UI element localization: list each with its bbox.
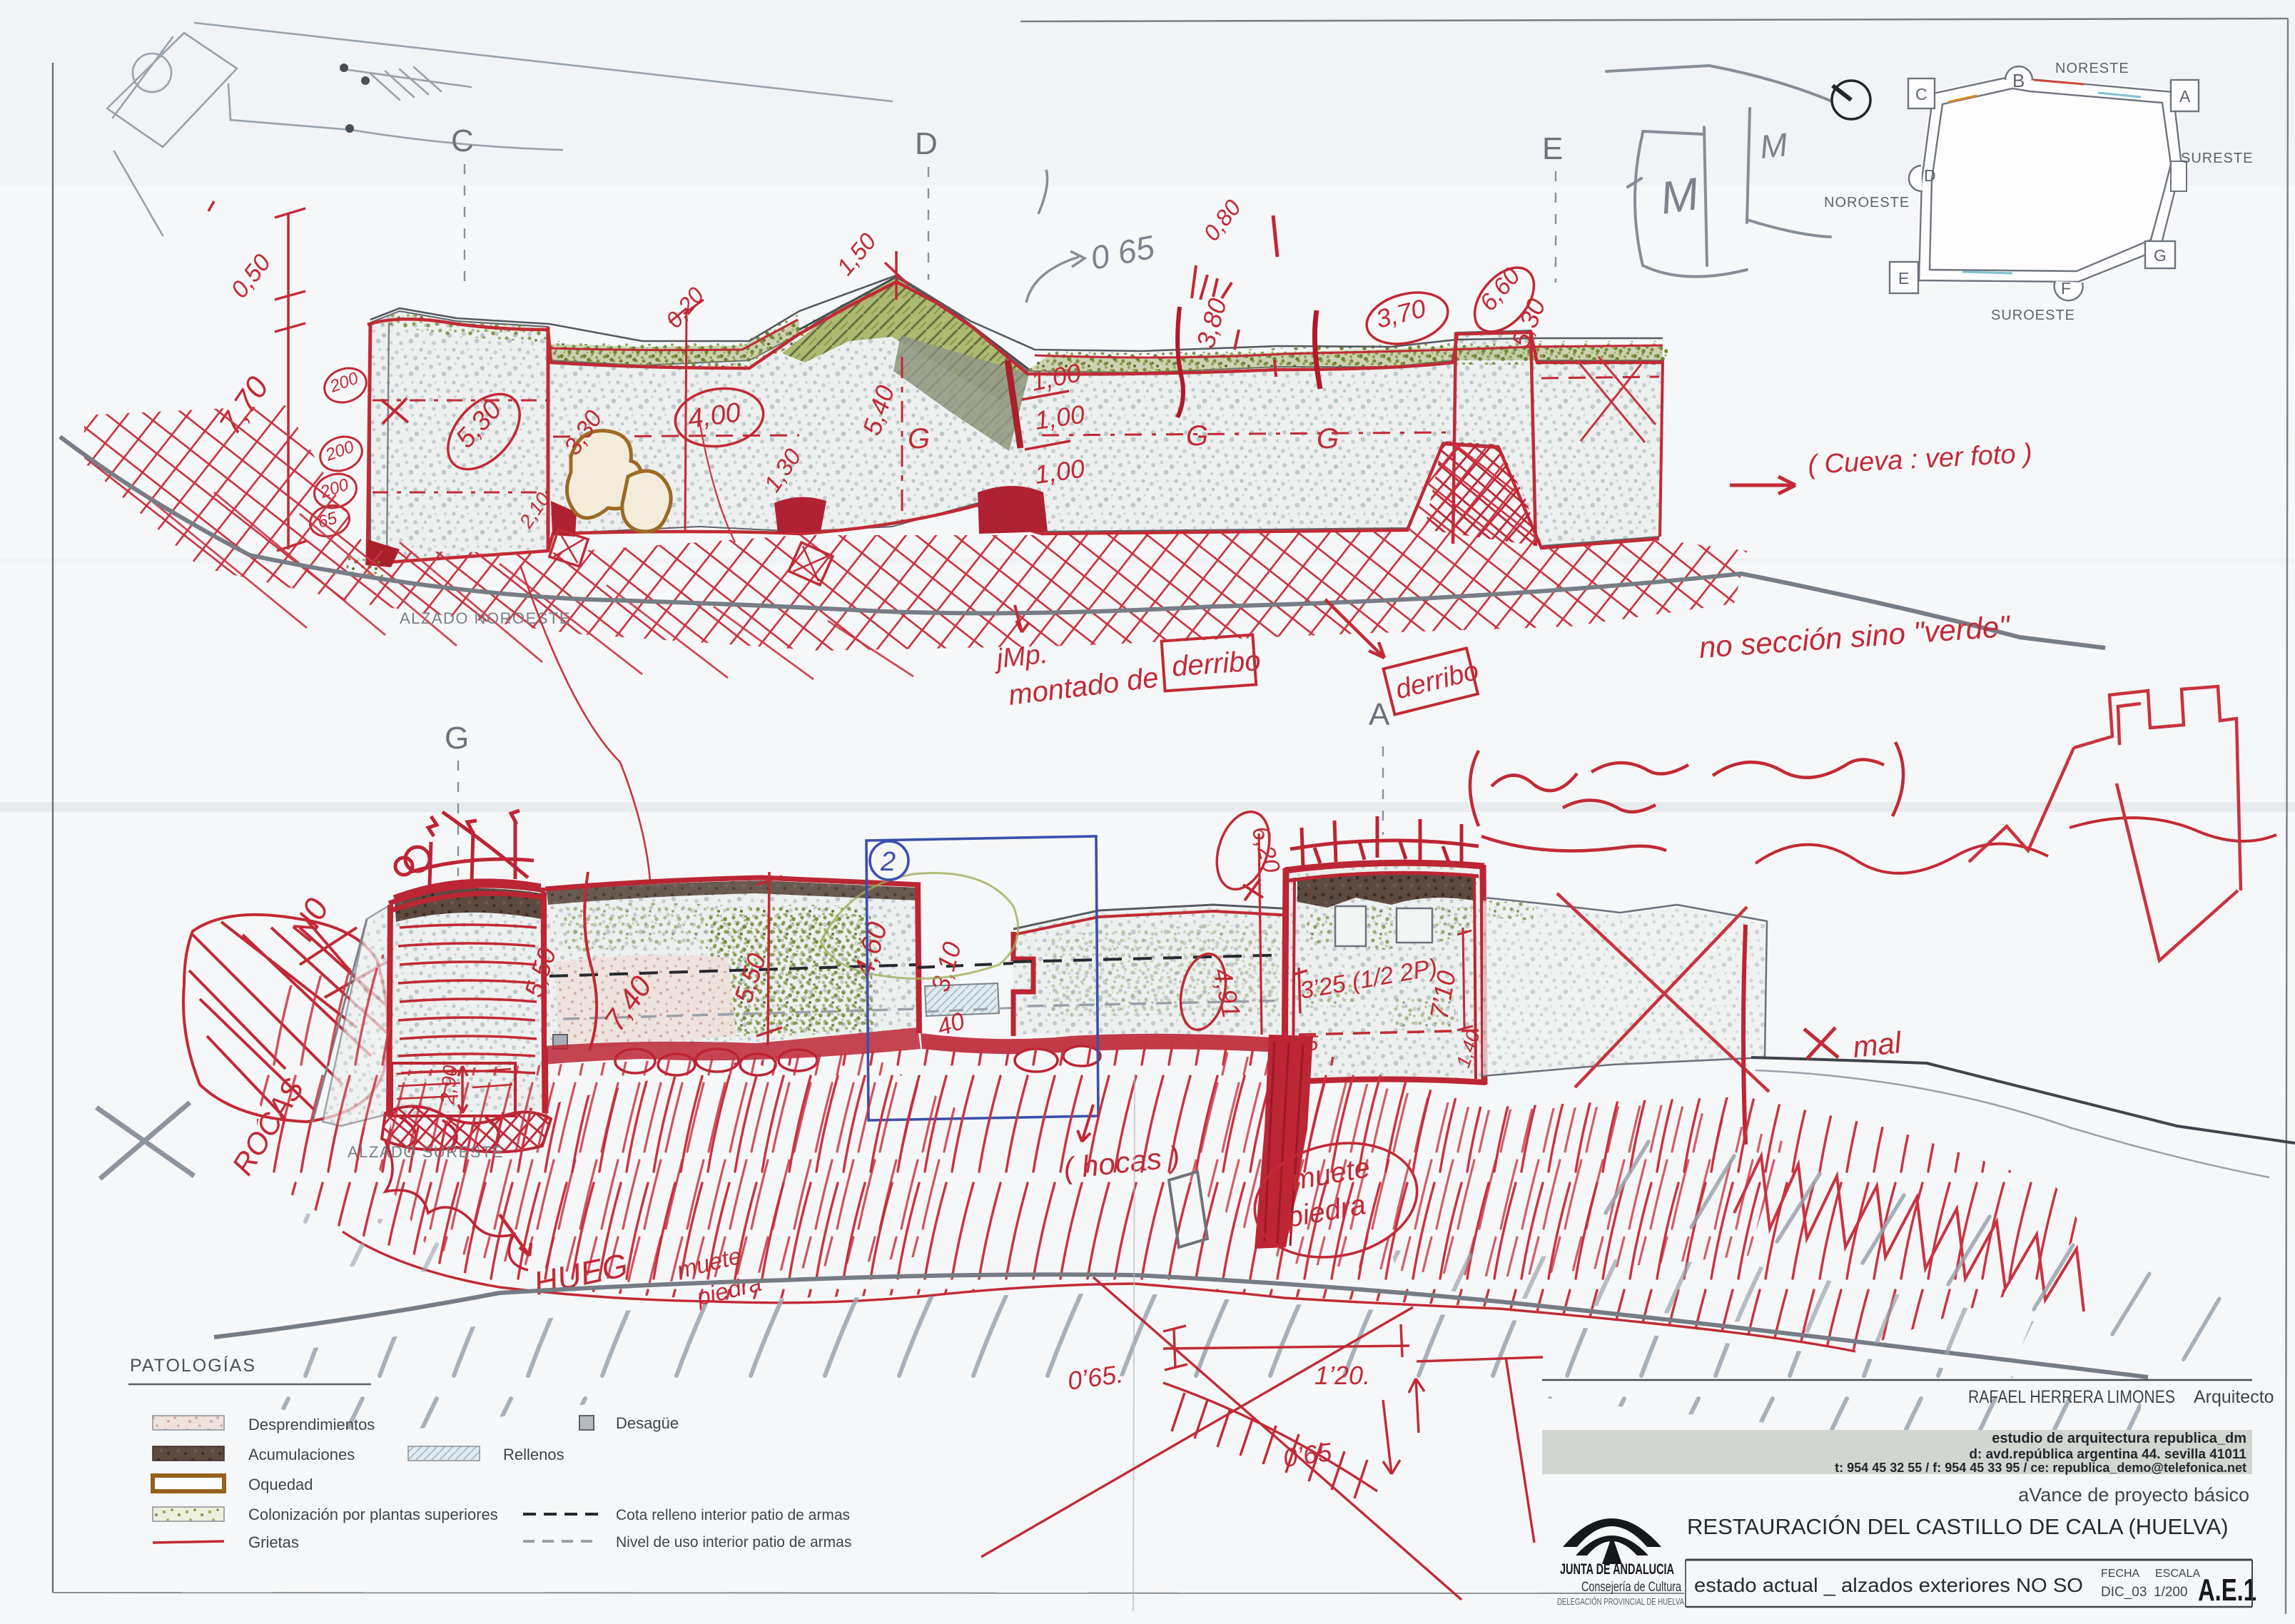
svg-text:B: B: [2012, 70, 2025, 91]
svg-text:G: G: [445, 721, 469, 756]
svg-text:Arquitecto: Arquitecto: [2194, 1387, 2274, 1407]
svg-text:D: D: [915, 126, 938, 161]
svg-text:G: G: [1317, 423, 1339, 455]
svg-text:ESCALA: ESCALA: [2155, 1568, 2200, 1580]
svg-text:Desprendimientos: Desprendimientos: [248, 1416, 375, 1433]
svg-text:estado actual _ alzados exteri: estado actual _ alzados exteriores NO SO: [1694, 1574, 2083, 1596]
svg-text:C: C: [1915, 85, 1927, 103]
svg-text:NOROESTE: NOROESTE: [1824, 195, 1910, 210]
svg-text:G: G: [908, 423, 930, 455]
svg-text:aVance de proyecto básico: aVance de proyecto básico: [2018, 1484, 2249, 1506]
svg-text:Oquedad: Oquedad: [248, 1476, 313, 1493]
svg-text:Desagüe: Desagüe: [616, 1414, 679, 1432]
svg-text:Rellenos: Rellenos: [503, 1446, 564, 1463]
svg-text:G: G: [2154, 246, 2167, 265]
svg-text:E: E: [1898, 269, 1909, 288]
svg-text:A: A: [1369, 697, 1390, 732]
svg-text:ALZADO SURESTE: ALZADO SURESTE: [348, 1143, 504, 1161]
svg-text:Nivel de uso interior patio de: Nivel de uso interior patio de armas: [616, 1534, 851, 1551]
svg-text:C: C: [451, 123, 474, 158]
svg-text:A: A: [2179, 87, 2191, 106]
svg-text:Acumulaciones: Acumulaciones: [248, 1446, 355, 1463]
svg-text:F: F: [2061, 279, 2071, 298]
svg-text:RAFAEL HERRERA LIMONES: RAFAEL HERRERA LIMONES: [1968, 1387, 2175, 1407]
svg-text:DIC_03: DIC_03: [2101, 1585, 2147, 1600]
svg-text:d: avd.república argentina 44: d: avd.república argentina 44. sevilla 4…: [1969, 1447, 2246, 1462]
svg-text:1’20.: 1’20.: [1314, 1361, 1370, 1390]
svg-text:RESTAURACIÓN DEL CASTILLO DE C: RESTAURACIÓN DEL CASTILLO DE CALA (HUELV…: [1687, 1514, 2229, 1539]
svg-text:JUNTA DE ANDALUCIA: JUNTA DE ANDALUCIA: [1560, 1561, 1674, 1578]
svg-text:2: 2: [880, 847, 896, 877]
svg-text:derribo: derribo: [1171, 645, 1262, 683]
svg-text:FECHA: FECHA: [2101, 1568, 2140, 1580]
svg-text:SURESTE: SURESTE: [2181, 151, 2253, 166]
svg-text:Colonización por plantas super: Colonización por plantas superiores: [248, 1506, 498, 1523]
svg-text:A.E.1: A.E.1: [2198, 1573, 2256, 1608]
svg-text:PATOLOGÍAS: PATOLOGÍAS: [130, 1355, 256, 1376]
svg-text:estudio de arquitectura republ: estudio de arquitectura republica_dm: [1992, 1431, 2246, 1446]
svg-text:t: 954 45 32 55 / f: 954 45 33: t: 954 45 32 55 / f: 954 45 33 95 / ce: …: [1835, 1461, 2246, 1475]
svg-text:mal: mal: [1851, 1025, 1904, 1064]
svg-text:G: G: [1186, 420, 1208, 452]
svg-text:E: E: [1542, 131, 1563, 166]
svg-text:Consejería de Cultura: Consejería de Cultura: [1581, 1580, 1681, 1595]
svg-text:1/200: 1/200: [2154, 1585, 2188, 1600]
svg-text:jMp.: jMp.: [992, 639, 1050, 675]
svg-text:ALZADO NOROESTE: ALZADO NOROESTE: [400, 609, 571, 627]
svg-text:D: D: [1924, 166, 1936, 185]
svg-text:M: M: [1758, 126, 1790, 166]
svg-text:M: M: [1657, 168, 1702, 224]
svg-text:Cota relleno interior patio de: Cota relleno interior patio de armas: [616, 1507, 850, 1523]
svg-text:Grietas: Grietas: [248, 1533, 299, 1551]
svg-text:DELEGACIÓN PROVINCIAL DE HUELV: DELEGACIÓN PROVINCIAL DE HUELVA: [1557, 1596, 1684, 1607]
svg-text:SUROESTE: SUROESTE: [1991, 308, 2075, 323]
svg-text:NORESTE: NORESTE: [2055, 61, 2129, 76]
